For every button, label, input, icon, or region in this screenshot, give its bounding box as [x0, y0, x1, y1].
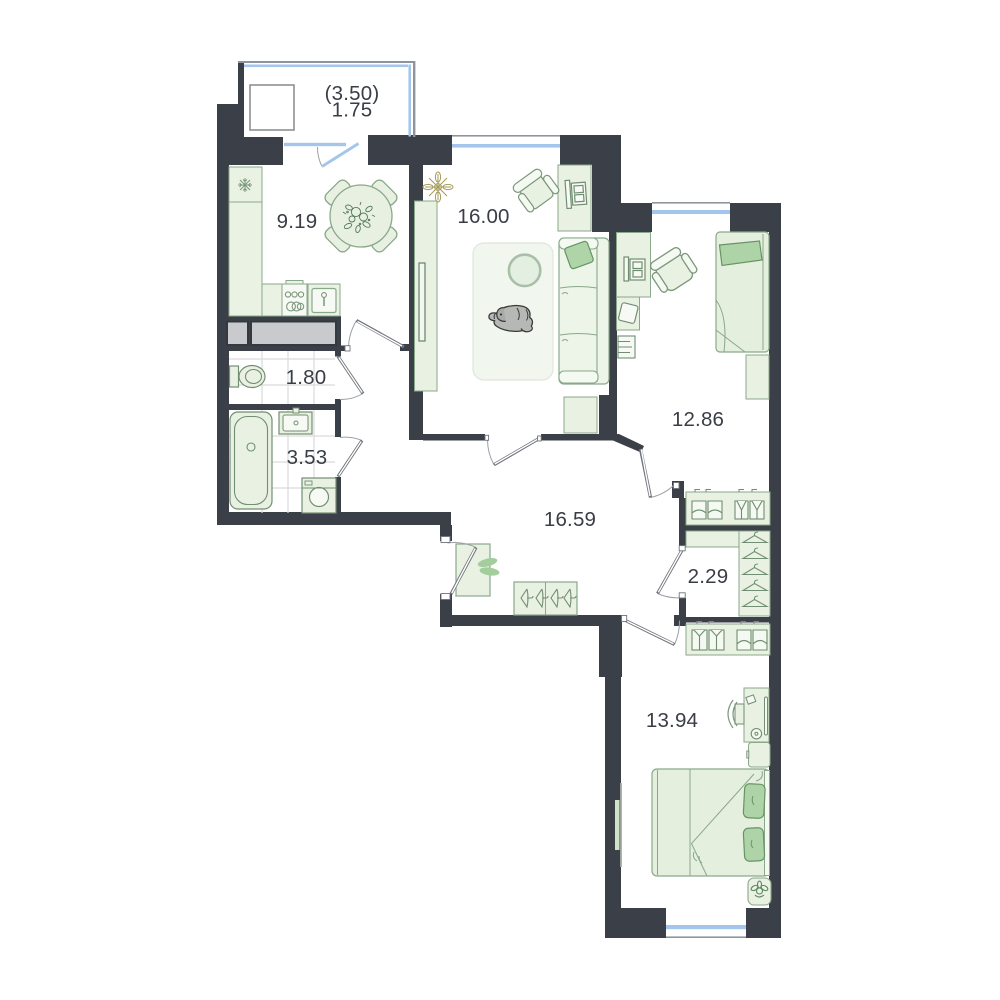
svg-text:1.80: 1.80: [286, 366, 327, 389]
svg-text:3.53: 3.53: [287, 446, 328, 469]
svg-text:2.29: 2.29: [688, 565, 729, 588]
svg-text:12.86: 12.86: [672, 408, 724, 431]
svg-text:9.19: 9.19: [277, 210, 318, 233]
svg-text:16.00: 16.00: [457, 205, 509, 228]
svg-text:13.94: 13.94: [646, 709, 698, 732]
svg-text:16.59: 16.59: [544, 508, 596, 531]
svg-text:1.75: 1.75: [332, 99, 373, 122]
